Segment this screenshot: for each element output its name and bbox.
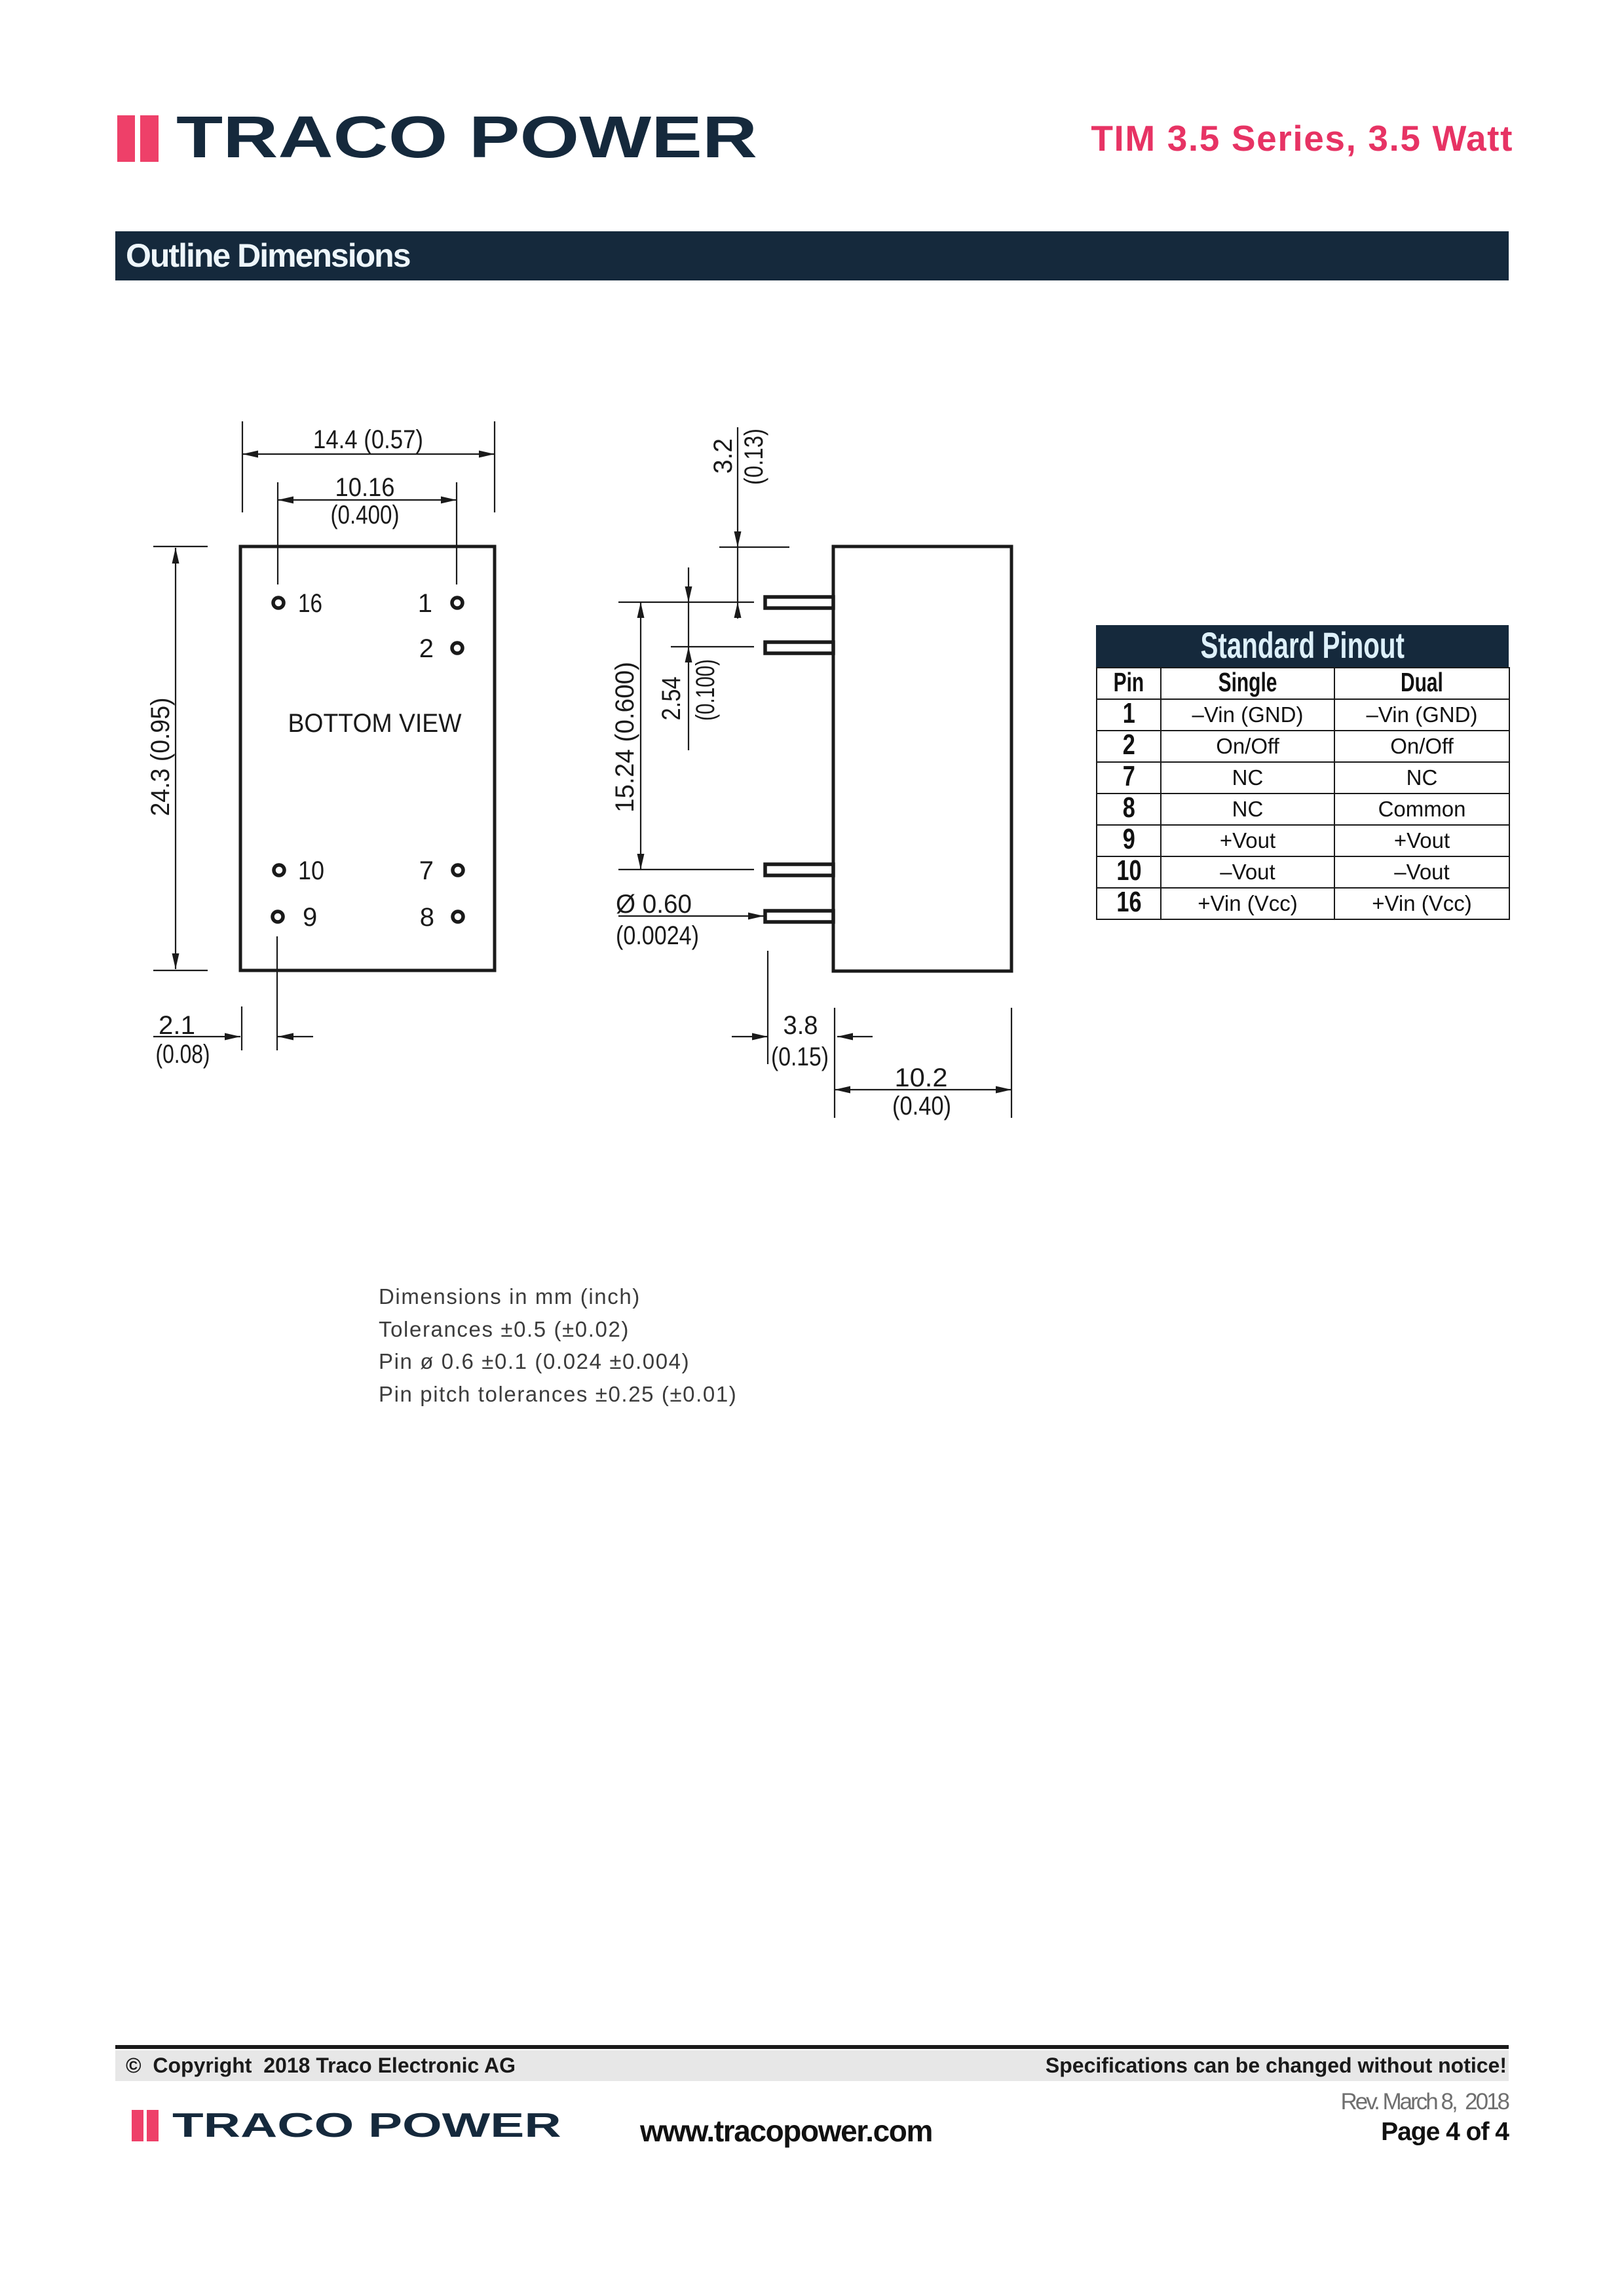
svg-text:1: 1	[418, 589, 432, 618]
svg-text:9: 9	[303, 903, 317, 932]
svg-text:2: 2	[419, 634, 434, 663]
svg-text:2.54: 2.54	[657, 677, 686, 721]
svg-text:(0.100): (0.100)	[691, 659, 720, 721]
svg-text:Ø 0.60: Ø 0.60	[616, 890, 692, 919]
svg-text:(0.40): (0.40)	[892, 1092, 951, 1120]
svg-text:10.2: 10.2	[895, 1063, 948, 1092]
svg-text:16: 16	[298, 589, 322, 618]
svg-text:(0.0024): (0.0024)	[616, 921, 699, 950]
svg-text:7: 7	[419, 856, 434, 885]
svg-text:24.3 (0.95): 24.3 (0.95)	[146, 698, 175, 816]
svg-text:(0.13): (0.13)	[740, 429, 768, 485]
svg-text:3.8: 3.8	[784, 1011, 818, 1040]
svg-text:3.2: 3.2	[709, 438, 738, 474]
svg-text:(0.15): (0.15)	[771, 1043, 829, 1071]
svg-text:(0.400): (0.400)	[331, 501, 400, 529]
svg-text:10.16: 10.16	[335, 473, 395, 502]
svg-text:BOTTOM VIEW: BOTTOM VIEW	[288, 709, 462, 738]
svg-text:14.4 (0.57): 14.4 (0.57)	[313, 425, 423, 454]
svg-text:15.24 (0.600): 15.24 (0.600)	[611, 662, 639, 813]
svg-text:2.1: 2.1	[159, 1011, 195, 1040]
svg-text:8: 8	[420, 903, 434, 932]
svg-text:10: 10	[298, 856, 324, 885]
svg-text:(0.08): (0.08)	[156, 1040, 210, 1069]
